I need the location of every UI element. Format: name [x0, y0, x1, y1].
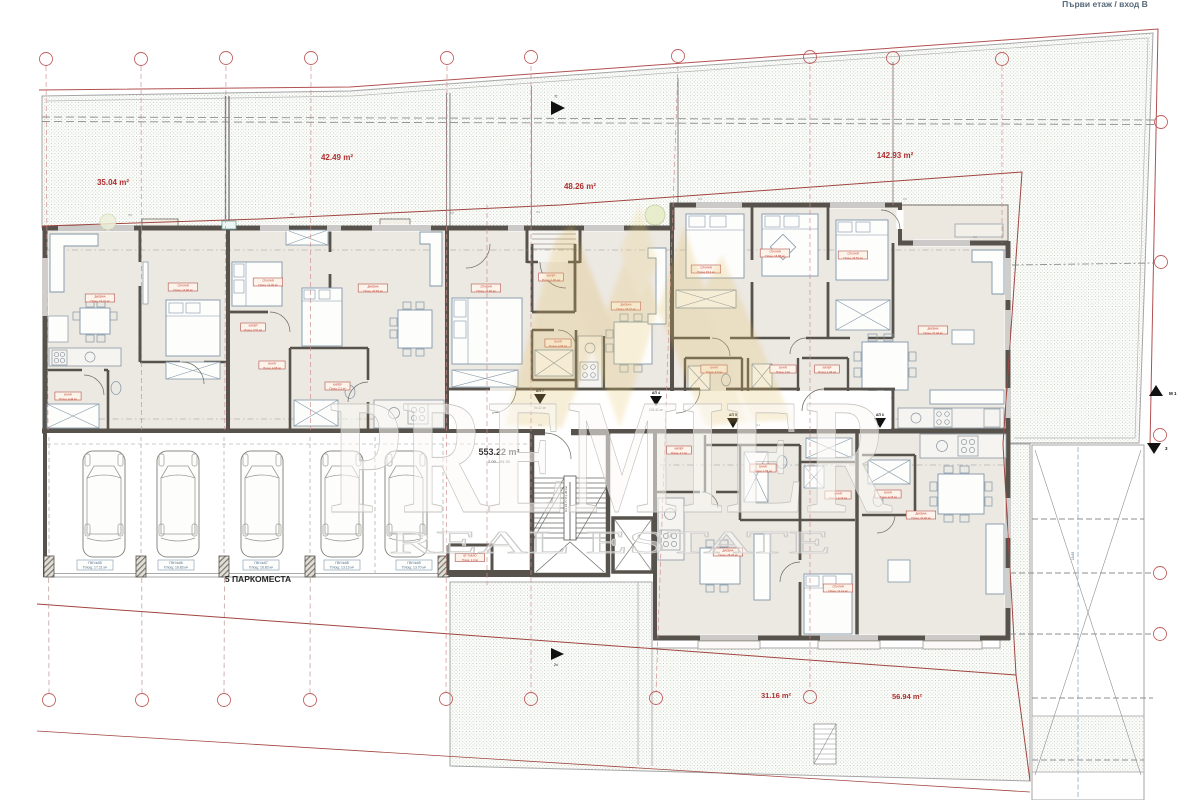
svg-text:Площ: 16.83 м²: Площ: 16.83 м² — [249, 566, 274, 570]
svg-text:ПМ №66: ПМ №66 — [169, 561, 183, 565]
svg-text:≈: ≈ — [555, 94, 558, 100]
svg-text:Площ: 4.68 м²: Площ: 4.68 м² — [263, 366, 281, 370]
svg-text:5,8: 5,8 — [450, 211, 454, 215]
svg-text:Площ: 12.46 м²: Площ: 12.46 м² — [259, 283, 278, 287]
svg-text:31.16 m²: 31.16 m² — [761, 691, 792, 700]
svg-text:Площ: 22.22 м²: Площ: 22.22 м² — [91, 299, 110, 303]
svg-text:СПАЛНЯ: СПАЛНЯ — [700, 266, 711, 270]
svg-text:48.26 m²: 48.26 m² — [564, 182, 596, 191]
svg-text:Площ: 16.83 м²: Площ: 16.83 м² — [164, 566, 189, 570]
svg-text:Площ: 27.44 м²: Площ: 27.44 м² — [924, 331, 943, 335]
svg-text:Площ: 20.83 м²: Площ: 20.83 м² — [364, 289, 383, 293]
svg-text:Площ: 4.44 м²: Площ: 4.44 м² — [59, 397, 77, 401]
svg-text:ДНЕВНА: ДНЕВНА — [367, 285, 378, 289]
svg-text:Площ: 13.70 м²: Площ: 13.70 м² — [402, 566, 427, 570]
svg-text:ДНЕВНА: ДНЕВНА — [94, 295, 105, 299]
svg-text:БАНЯ: БАНЯ — [268, 362, 275, 366]
svg-text:ПМ №68: ПМ №68 — [335, 561, 349, 565]
svg-text:Площ: 13.13 м²: Площ: 13.13 м² — [330, 566, 355, 570]
svg-text:42.49 m²: 42.49 m² — [321, 153, 353, 162]
svg-text:Първи етаж / вход В: Първи етаж / вход В — [1062, 0, 1148, 9]
svg-text:ПМ №69: ПМ №69 — [407, 561, 421, 565]
svg-text:СПАЛНЯ: СПАЛНЯ — [177, 284, 188, 288]
svg-text:БАНЯ: БАНЯ — [64, 393, 71, 397]
svg-text:Площ: 16.88 м²: Площ: 16.88 м² — [766, 254, 785, 258]
svg-text:35.04 m²: 35.04 m² — [97, 178, 129, 187]
svg-text:ПМ №67: ПМ №67 — [254, 561, 268, 565]
svg-text:СПАЛНЯ: СПАЛНЯ — [847, 252, 858, 256]
svg-text:9,9: 9,9 — [536, 210, 540, 214]
svg-text:КИЛЕР: КИЛЕР — [249, 324, 258, 328]
svg-text:5,8: 5,8 — [128, 213, 132, 217]
svg-text:ДНЕВНА: ДНЕВНА — [915, 512, 926, 516]
svg-text:Площ: 12.96 м²: Площ: 12.96 м² — [174, 288, 193, 292]
svg-text:PREMIER: PREMIER — [329, 365, 892, 548]
svg-text:СПАЛНЯ: СПАЛНЯ — [480, 285, 491, 289]
svg-text:СПАЛНЯ: СПАЛНЯ — [769, 250, 780, 254]
svg-text:Площ: 16.52 м²: Площ: 16.52 м² — [844, 256, 863, 260]
svg-text:СПАЛНЯ: СПАЛНЯ — [832, 585, 843, 589]
svg-text:Площ: 23.46 м²: Площ: 23.46 м² — [912, 516, 931, 520]
svg-text:Площ: 3.57 м²: Площ: 3.57 м² — [244, 328, 262, 332]
svg-text:ПМ №65: ПМ №65 — [88, 561, 102, 565]
svg-text:Площ: 15.1 м²: Площ: 15.1 м² — [697, 270, 715, 274]
svg-text:M 1: M 1 — [1169, 391, 1177, 396]
svg-text:СПАЛНЯ: СПАЛНЯ — [262, 279, 273, 283]
svg-text:REAL ESTATE: REAL ESTATE — [389, 524, 831, 560]
svg-text:Площ: 12.66 м²: Площ: 12.66 м² — [477, 289, 496, 293]
svg-text:5 ПАРКОМЕСТА: 5 ПАРКОМЕСТА — [225, 574, 291, 584]
svg-text:9,9: 9,9 — [903, 197, 907, 201]
svg-text:18.65: 18.65 — [1071, 552, 1075, 561]
svg-text:6,2: 6,2 — [973, 235, 977, 239]
svg-text:8,9: 8,9 — [698, 197, 702, 201]
svg-text:Площ: 12.14 м²: Площ: 12.14 м² — [829, 589, 848, 593]
svg-text:142.93 m²: 142.93 m² — [877, 151, 914, 160]
svg-text:Площ: 17.21 м²: Площ: 17.21 м² — [83, 566, 108, 570]
svg-text:ДНЕВНА: ДНЕВНА — [927, 327, 938, 331]
svg-text:2v: 2v — [554, 662, 558, 667]
svg-text:56.94 m²: 56.94 m² — [892, 692, 923, 701]
svg-text:9,9: 9,9 — [290, 212, 294, 216]
